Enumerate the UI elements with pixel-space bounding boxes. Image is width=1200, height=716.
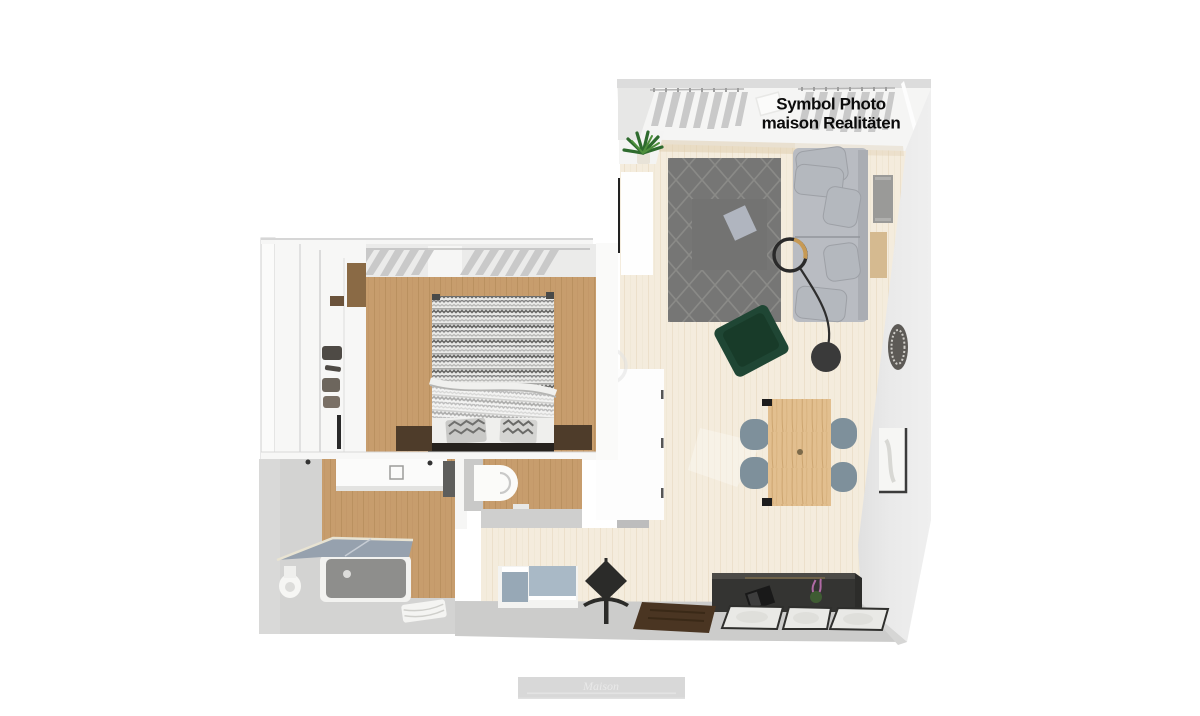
svg-text:Symbol Photo: Symbol Photo: [776, 95, 885, 114]
svg-text:maison Realitäten: maison Realitäten: [762, 114, 901, 133]
svg-text:Maison: Maison: [582, 679, 619, 693]
